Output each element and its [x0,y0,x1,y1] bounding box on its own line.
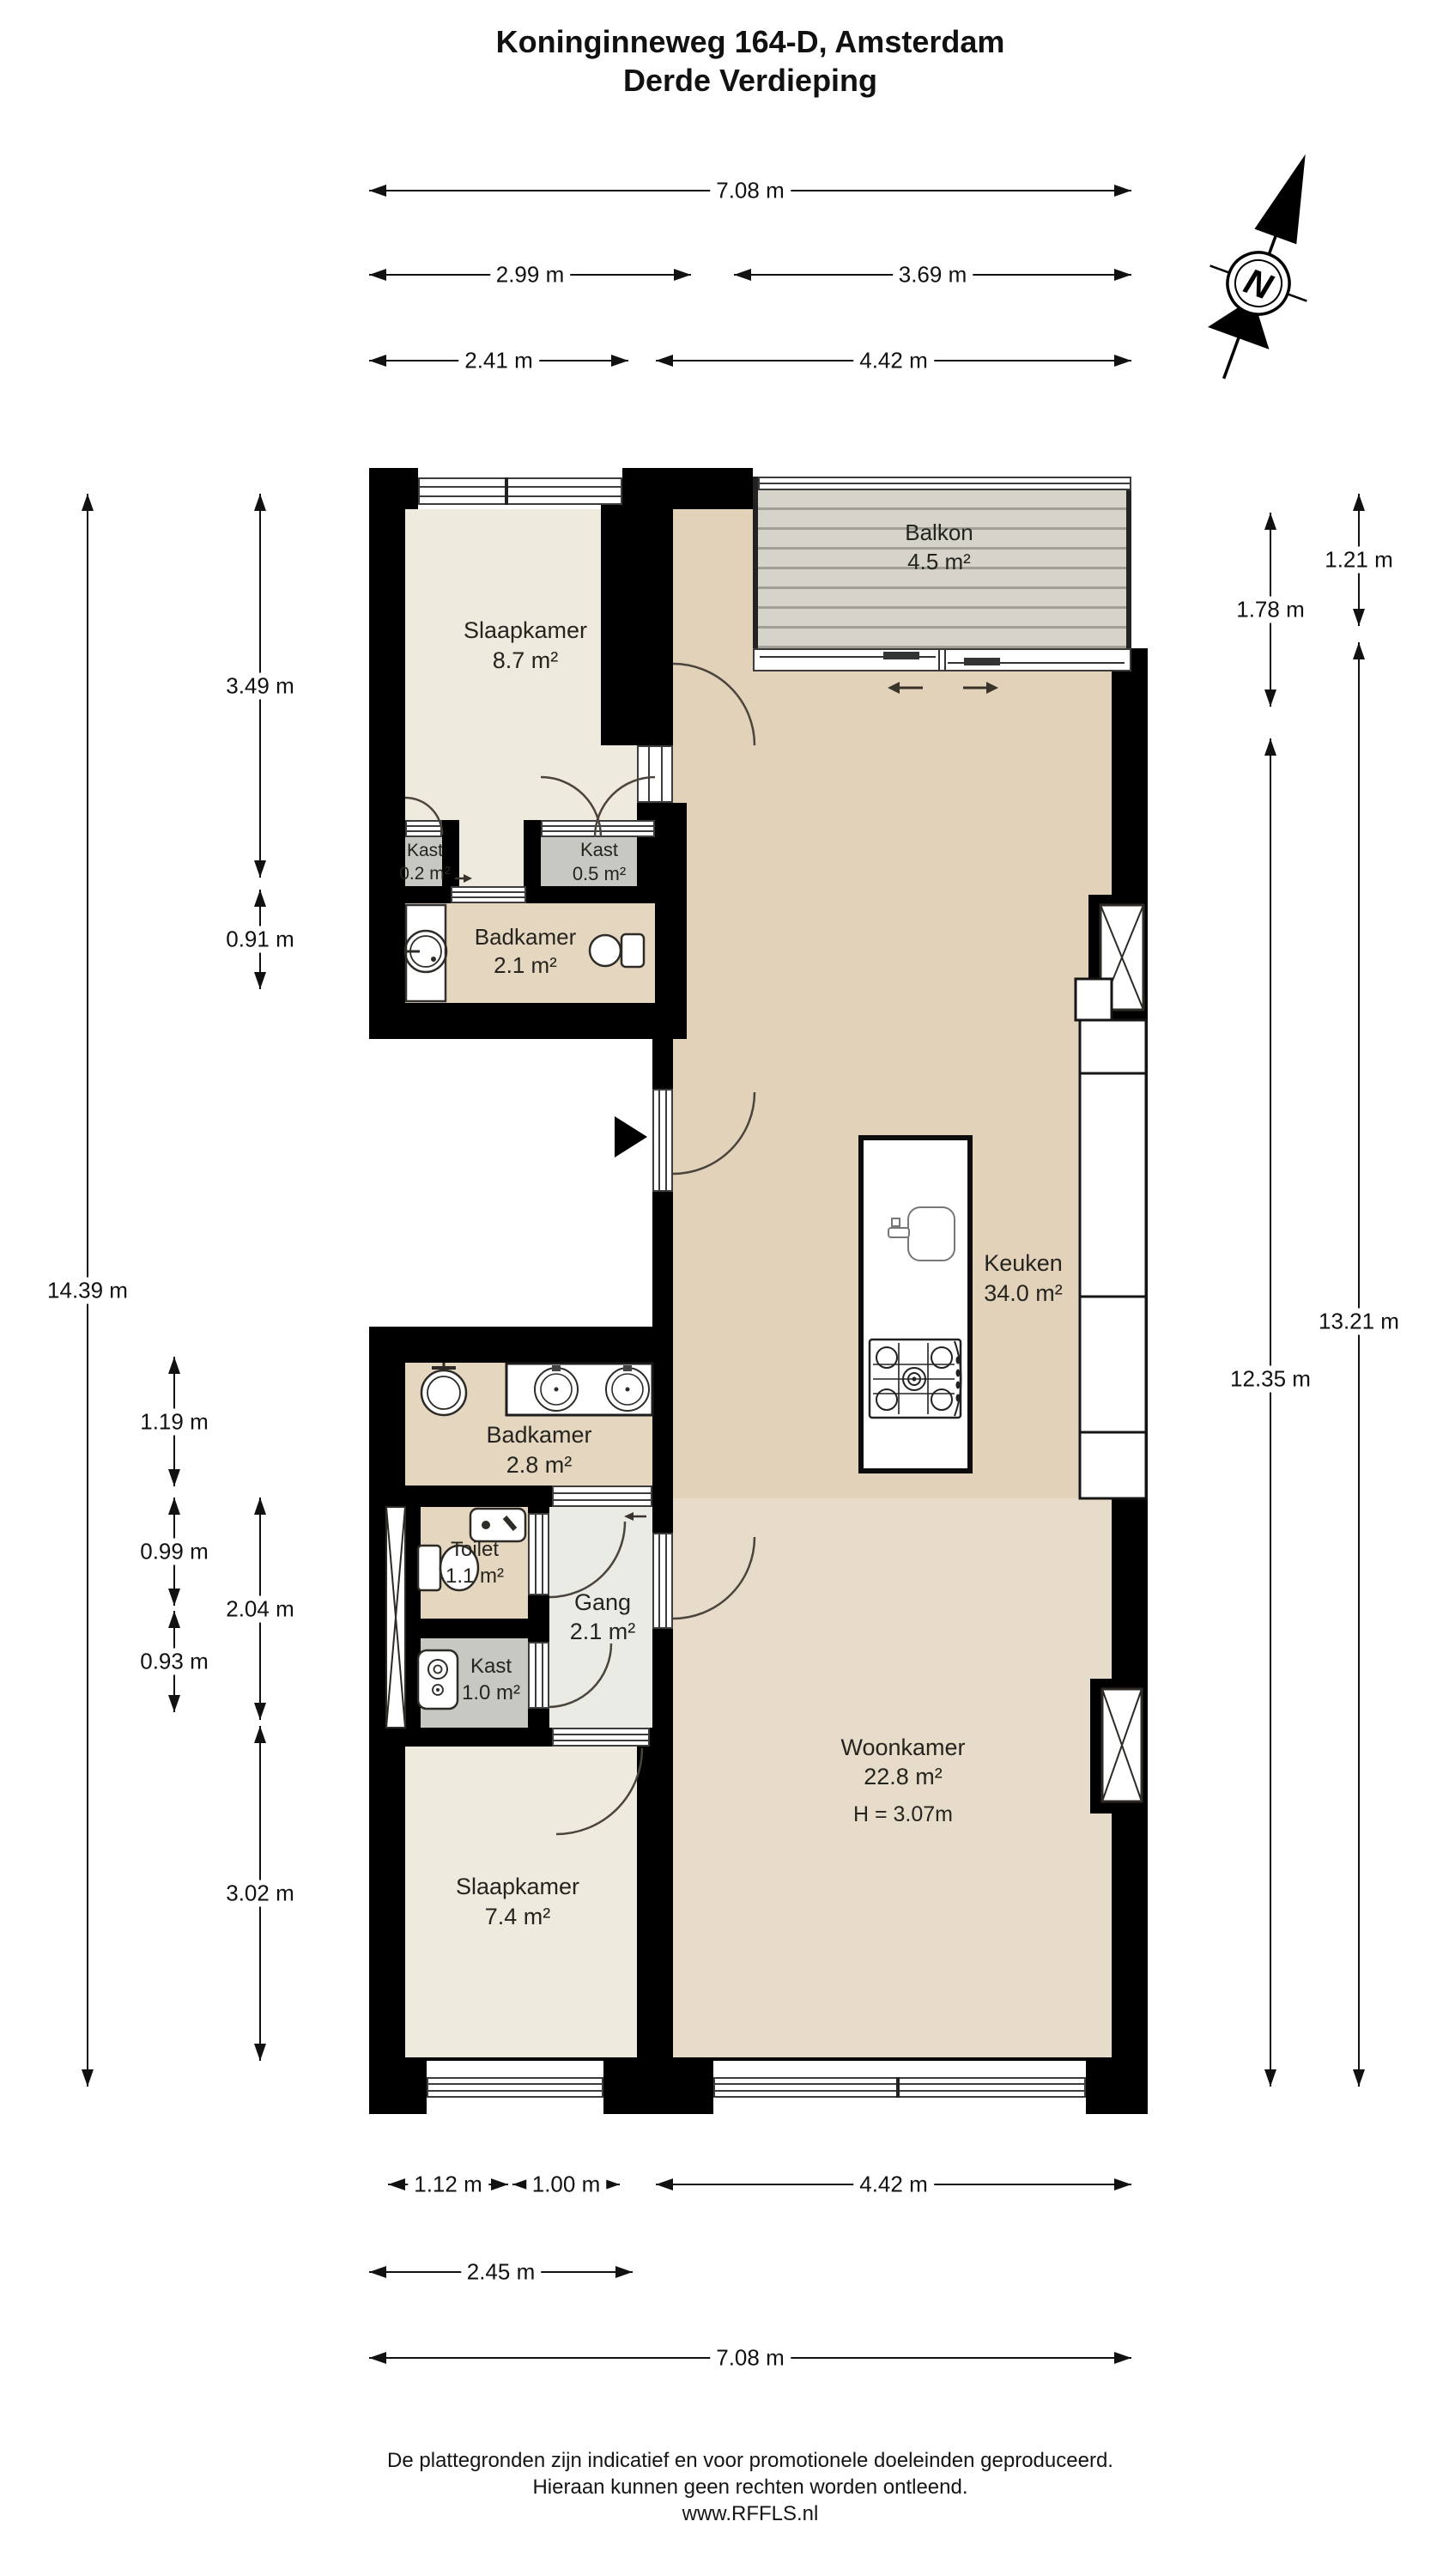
dim-label: 0.99 m [134,1539,215,1565]
dim-left-d: 0.99 m [173,1498,175,1606]
label-kast02: Kast 0.2 m² [399,839,451,885]
dim-label: 2.41 m [458,348,539,374]
room-area: 1.1 m² [446,1563,504,1589]
dim-label: 2.99 m [490,262,571,289]
dim-top-left-a: 2.99 m [369,274,691,276]
room-keuken-nook-floor [673,509,753,648]
door-band-slaapkamer1 [637,745,673,803]
wall-segment [369,1327,673,1363]
dim-right-inner-full: 12.35 m [1270,738,1271,2087]
dim-label: 7.08 m [710,178,791,204]
window-mullion [505,477,508,505]
floor-plan-page: Koninginneweg 164-D, Amsterdam Derde Ver… [0,0,1449,2576]
room-name: Gang [570,1588,636,1617]
dim-label: 2.45 m [461,2259,542,2286]
wall-segment [637,509,673,745]
footer-line2: Hieraan kunnen geen rechten worden ontle… [52,2474,1449,2500]
label-kast05: Kast 0.5 m² [573,838,626,886]
dim-label: 12.35 m [1224,1365,1317,1392]
window-woonkamer [713,2077,1086,2098]
room-area: 0.2 m² [399,862,451,885]
left-shaft [386,1507,405,1728]
dim-bottom-full: 7.08 m [369,2357,1131,2359]
window-mullion [896,2077,900,2098]
wall-segment [369,509,405,1039]
room-area: 2.1 m² [475,951,577,980]
page-title: Koninginneweg 164-D, Amsterdam Derde Ver… [52,22,1449,100]
window-slaapkamer2 [427,2077,603,2098]
room-name: Badkamer [475,923,577,951]
door-band-kast10 [528,1642,549,1709]
dim-right-a: 1.21 m [1358,494,1360,626]
dim-left-b: 0.91 m [259,890,261,989]
dim-label: 3.49 m [220,672,300,699]
wall-segment [1112,648,1148,2061]
dim-left-full: 14.39 m [87,494,88,2087]
dim-bottom-c: 4.42 m [656,2184,1131,2185]
label-badkamer2: Badkamer 2.8 m² [486,1420,591,1480]
balcony-left-wall [753,477,758,671]
label-balkon: Balkon 4.5 m² [905,518,973,576]
room-name: Badkamer [486,1420,591,1450]
dim-label: 0.91 m [220,927,300,953]
wall-segment [405,1507,421,1728]
dim-label: 1.21 m [1319,547,1399,574]
room-name: Slaapkamer [456,1872,579,1902]
room-area: 2.8 m² [486,1450,591,1480]
dim-left-a: 3.49 m [259,494,261,878]
label-woonkamer: Woonkamer 22.8 m² H = 3.07m [840,1733,965,1829]
label-keuken: Keuken 34.0 m² [984,1249,1063,1309]
wall-segment [601,504,637,745]
bottom-pier [603,2061,713,2114]
room-area: 8.7 m² [464,646,587,676]
label-kast10: Kast 1.0 m² [462,1653,520,1706]
title-address: Koninginneweg 164-D, Amsterdam [52,22,1449,61]
compass-fin [1239,298,1284,349]
dim-top-left-b: 2.41 m [369,360,628,361]
wall-segment [622,468,753,509]
dim-label: 3.02 m [220,1880,300,1907]
compass-fin [1208,287,1253,338]
label-gang: Gang 2.1 m² [570,1588,636,1646]
footer-disclaimer: De plattegronden zijn indicatief en voor… [52,2447,1449,2527]
room-ceiling-height: H = 3.07m [840,1800,965,1829]
dim-right-b: 1.78 m [1270,513,1271,707]
room-name: Kast [462,1653,520,1680]
balcony-railing [758,477,1131,490]
room-area: 4.5 m² [905,547,973,576]
dim-label: 1.00 m [526,2172,607,2198]
entrance-door-band [652,1089,673,1192]
dim-left-e: 0.93 m [173,1611,175,1712]
dim-label: 1.12 m [408,2172,488,2198]
room-name: Kast [399,839,451,862]
label-badkamer1: Badkamer 2.1 m² [475,923,577,980]
dim-label: 7.08 m [710,2345,791,2372]
wall-segment [652,1039,673,1089]
compass-north-arrow [1254,147,1326,245]
wall-segment [369,1003,687,1039]
bottom-pier [369,2061,427,2114]
wall-segment [369,1485,552,1507]
dim-label: 3.69 m [893,262,973,289]
compass-needle-line [1224,210,1285,378]
label-toilet: Toilet 1.1 m² [446,1536,504,1589]
dim-label: 14.39 m [41,1277,134,1303]
footer-line1: De plattegronden zijn indicatief en voor… [52,2447,1449,2474]
room-name: Keuken [984,1249,1063,1279]
dim-label: 1.19 m [134,1408,215,1435]
dim-label: 0.93 m [134,1649,215,1675]
dim-top-right-a: 3.69 m [734,274,1131,276]
door-band-kast05 [541,820,655,837]
wall-segment [369,1507,386,1728]
dim-label: 13.21 m [1313,1308,1405,1334]
room-name: Toilet [446,1536,504,1563]
wall-segment [369,468,418,509]
sliding-door-slaapkamer2 [552,1728,650,1747]
wall-segment [650,1728,673,1747]
floor-edge-line [369,2057,1148,2061]
dim-label: 4.42 m [853,348,934,374]
footer-url: www.RFFLS.nl [52,2500,1449,2527]
dim-bottom-a: 1.12 m [388,2184,508,2185]
door-band-toilet [528,1513,549,1595]
label-slaapkamer1: Slaapkamer 8.7 m² [464,616,587,676]
title-floor: Derde Verdieping [52,61,1449,100]
room-name: Balkon [905,518,973,547]
room-area: 34.0 m² [984,1279,1063,1309]
sliding-door-badkamer1 [451,886,526,903]
shaft-niche-wall [1090,1679,1148,1814]
room-area: 22.8 m² [840,1762,965,1791]
dim-label: 2.04 m [220,1595,300,1622]
room-area: 2.1 m² [570,1617,636,1646]
room-slaapkamer1-passage-floor [459,820,524,886]
wall-segment [655,903,687,1003]
balcony-right-rail [1126,477,1131,648]
dim-top-full: 7.08 m [369,190,1131,191]
room-name: Woonkamer [840,1733,965,1762]
room-area: 7.4 m² [456,1902,579,1932]
dim-top-right-b: 4.42 m [656,360,1131,361]
room-area: 1.0 m² [462,1680,520,1706]
dim-label: 4.42 m [853,2172,934,2198]
door-band-kast02 [405,820,442,837]
left-shaft-x [386,1507,405,1728]
room-area: 0.5 m² [573,862,626,886]
compass-circle [1219,244,1298,323]
label-slaapkamer2: Slaapkamer 7.4 m² [456,1872,579,1932]
dim-label: 1.78 m [1230,597,1311,623]
compass-crosshair [1210,265,1307,301]
sliding-door-badkamer2 [552,1485,652,1507]
entrance-arrow-icon [615,1116,647,1157]
dim-bottom-d: 2.45 m [369,2271,633,2273]
wall-segment [637,1747,673,2061]
dim-bottom-b: 1.00 m [512,2184,620,2185]
room-name: Kast [573,838,626,862]
wall-segment [405,1619,528,1638]
room-keuken-floor [673,637,1112,1498]
dim-left-g: 3.02 m [259,1726,261,2061]
door-band-gang-woonkamer [652,1533,673,1629]
balcony-sliding-door [753,648,1131,671]
compass-inner-circle [1228,253,1288,313]
north-compass: N [1175,137,1354,396]
wall-segment [369,1728,405,2061]
dim-left-f: 2.04 m [259,1498,261,1720]
left-shaft-x [386,1507,405,1728]
dim-left-c: 1.19 m [173,1357,175,1486]
compass-n-letter: N [1240,260,1279,307]
dim-right-outer-full: 13.21 m [1358,642,1360,2087]
fridge-niche-wall [1088,895,1148,1020]
window-slaapkamer1 [418,477,622,505]
bottom-pier [1086,2061,1148,2114]
room-name: Slaapkamer [464,616,587,646]
